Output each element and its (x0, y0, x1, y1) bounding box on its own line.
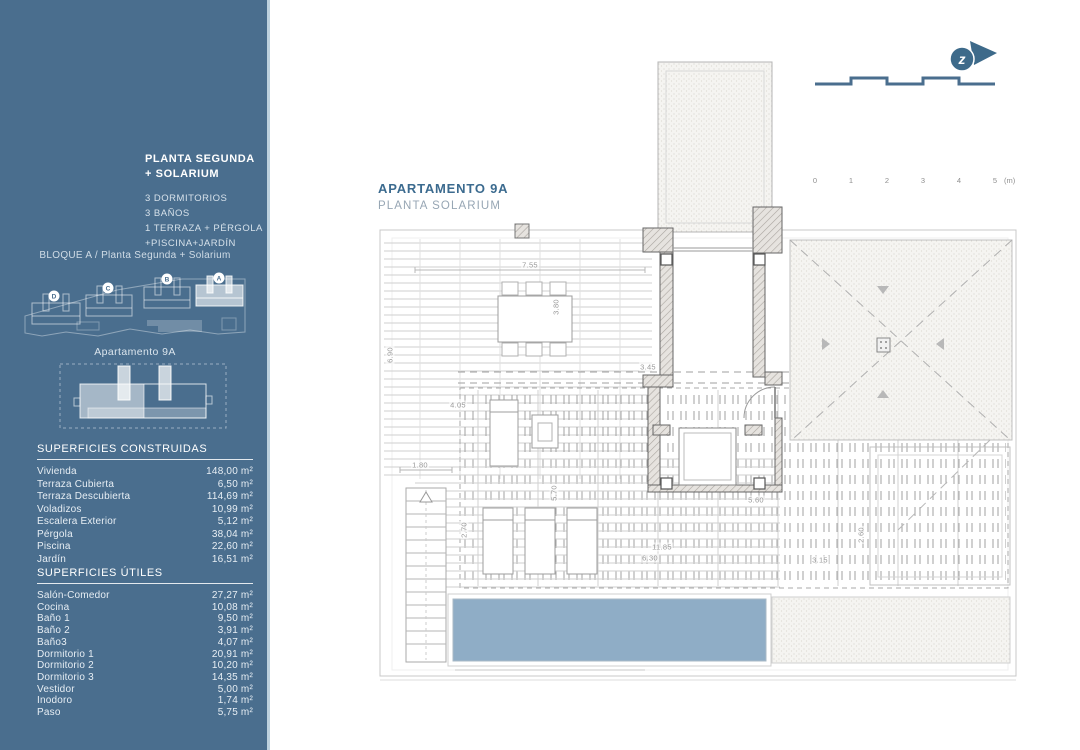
table-row: Inodoro 1,74 m² (37, 695, 253, 707)
unit-stub-right (159, 366, 171, 400)
dining-table (498, 282, 572, 356)
row-value: 14,35 m² (212, 672, 253, 684)
unit-thumbnail (58, 360, 228, 432)
sidebar-title: PLANTA SEGUNDA + SOLARIUM (145, 152, 263, 181)
table-row: Terraza Descubierta 114,69 m² (37, 491, 253, 504)
row-label: Escalera Exterior (37, 516, 117, 529)
row-label: Vivienda (37, 466, 77, 479)
row-value: 5,00 m² (218, 684, 253, 696)
row-label: Dormitorio 2 (37, 660, 94, 672)
table-row: Baño 2 3,91 m² (37, 625, 253, 637)
surfaces-useful-title: SUPERFICIES ÚTILES (37, 567, 253, 584)
site-key-plan: D C B A (22, 270, 248, 346)
table-row: Cocina 10,08 m² (37, 602, 253, 614)
block-c-letter: C (106, 285, 111, 292)
table-row: Escalera Exterior 5,12 m² (37, 516, 253, 529)
table-row: Dormitorio 1 20,91 m² (37, 649, 253, 661)
table-row: Salón-Comedor 27,27 m² (37, 590, 253, 602)
chimney (515, 224, 529, 238)
row-value: 5,75 m² (218, 707, 253, 719)
table-row: Baño 1 9,50 m² (37, 613, 253, 625)
surfaces-built-title: SUPERFICIES CONSTRUIDAS (37, 443, 253, 460)
table-row: Baño3 4,07 m² (37, 637, 253, 649)
table-row: Paso 5,75 m² (37, 707, 253, 719)
sidebar: PLANTA SEGUNDA + SOLARIUM 3 DORMITORIOS3… (0, 0, 270, 750)
table-row: Vestidor 5,00 m² (37, 684, 253, 696)
row-value: 114,69 m² (207, 491, 253, 504)
row-label: Dormitorio 3 (37, 672, 94, 684)
surfaces-useful-rows: Salón-Comedor 27,27 m² Cocina 10,08 m² B… (37, 590, 253, 719)
row-value: 6,50 m² (218, 479, 253, 492)
row-label: Baño3 (37, 637, 67, 649)
unit-features-list: 3 DORMITORIOS3 BAÑOS1 TERRAZA + PÉRGOLA+… (145, 191, 265, 251)
garden-area (772, 597, 1010, 663)
row-value: 5,12 m² (218, 516, 253, 529)
row-value: 10,08 m² (212, 602, 253, 614)
feature-item: +PISCINA+JARDÍN (145, 236, 265, 251)
row-value: 3,91 m² (218, 625, 253, 637)
row-label: Paso (37, 707, 61, 719)
row-value: 16,51 m² (212, 554, 253, 567)
floor-plan: 7.553.806.903.454.051.802.705.705.6011.8… (378, 58, 1022, 690)
surfaces-built-rows: Vivienda 148,00 m² Terraza Cubierta 6,50… (37, 466, 253, 566)
table-row: Terraza Cubierta 6,50 m² (37, 479, 253, 492)
table-row: Voladizos 10,99 m² (37, 504, 253, 517)
table-row: Dormitorio 3 14,35 m² (37, 672, 253, 684)
swimming-pool (448, 594, 771, 666)
feature-item: 3 DORMITORIOS (145, 191, 265, 206)
row-label: Vestidor (37, 684, 75, 696)
skylight (679, 428, 736, 485)
row-value: 22,60 m² (212, 541, 253, 554)
row-label: Terraza Cubierta (37, 479, 114, 492)
table-row: Pérgola 38,04 m² (37, 529, 253, 542)
site-feature (222, 318, 236, 330)
row-label: Baño 2 (37, 625, 70, 637)
row-label: Cocina (37, 602, 69, 614)
feature-item: 3 BAÑOS (145, 206, 265, 221)
table-row: Vivienda 148,00 m² (37, 466, 253, 479)
unit-notch-left (74, 398, 80, 406)
table-row: Jardín 16,51 m² (37, 554, 253, 567)
row-value: 10,99 m² (212, 504, 253, 517)
row-label: Piscina (37, 541, 71, 554)
unit-caption: Apartamento 9A (20, 346, 250, 358)
row-value: 27,27 m² (212, 590, 253, 602)
block-a-letter: A (217, 275, 222, 282)
row-label: Terraza Descubierta (37, 491, 130, 504)
floor-plan-drawing (378, 58, 1022, 690)
row-value: 20,91 m² (212, 649, 253, 661)
unit-notch-right (206, 396, 212, 404)
row-value: 148,00 m² (206, 466, 253, 479)
surfaces-useful-table: SUPERFICIES ÚTILES Salón-Comedor 27,27 m… (37, 567, 253, 719)
row-label: Voladizos (37, 504, 82, 517)
table-row: Dormitorio 2 10,20 m² (37, 660, 253, 672)
row-label: Jardín (37, 554, 66, 567)
roof-drain (877, 338, 890, 352)
row-value: 9,50 m² (218, 613, 253, 625)
row-value: 38,04 m² (212, 529, 253, 542)
block-d-letter: D (52, 293, 57, 300)
row-value: 10,20 m² (212, 660, 253, 672)
row-label: Baño 1 (37, 613, 70, 625)
table-row: Piscina 22,60 m² (37, 541, 253, 554)
row-value: 4,07 m² (218, 637, 253, 649)
row-label: Inodoro (37, 695, 72, 707)
unit-terrace-band (88, 408, 206, 418)
row-label: Pérgola (37, 529, 73, 542)
surfaces-built-table: SUPERFICIES CONSTRUIDAS Vivienda 148,00 … (37, 443, 253, 566)
site-common-area (147, 320, 202, 332)
unit-stub-left (118, 366, 130, 400)
feature-item: 1 TERRAZA + PÉRGOLA (145, 221, 265, 236)
row-label: Dormitorio 1 (37, 649, 94, 661)
exterior-stairs (400, 467, 452, 662)
row-label: Salón-Comedor (37, 590, 110, 602)
block-caption: BLOQUE A / Planta Segunda + Solarium (20, 250, 250, 261)
block-b-letter: B (165, 276, 170, 283)
row-value: 1,74 m² (218, 695, 253, 707)
